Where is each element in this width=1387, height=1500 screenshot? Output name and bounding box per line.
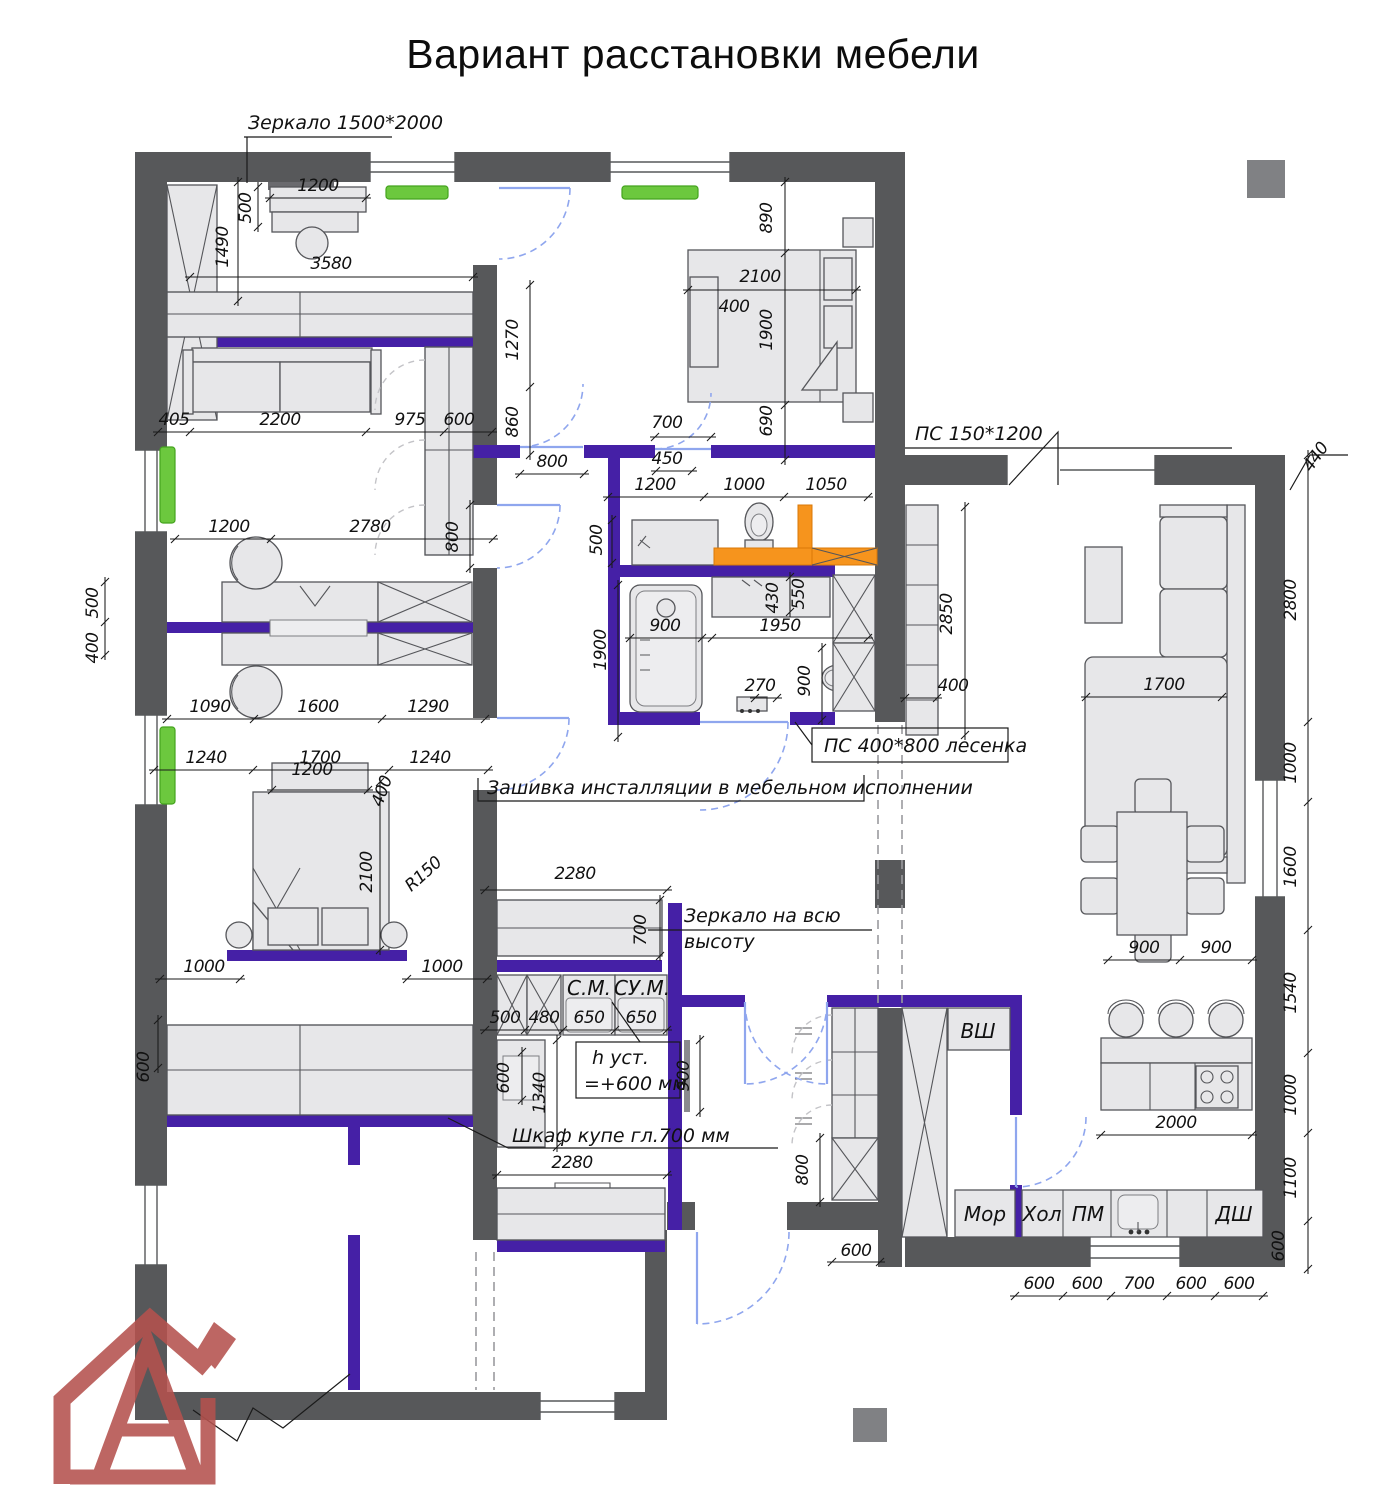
closet-hangers-bedroom2 (167, 1025, 473, 1115)
dimension-label: 1240 (409, 748, 450, 768)
annotation-ps-ladder: ПС 400*800 лесенка (824, 735, 1027, 757)
dining-table (1117, 812, 1187, 935)
dimension-label: 400 (719, 297, 750, 317)
annotation-mirror-full-2: высоту (684, 931, 755, 953)
dimension-label: 2200 (259, 410, 300, 430)
dimension-label: 650 (574, 1008, 605, 1028)
annotation-mirror-top: Зеркало 1500*2000 (248, 112, 443, 134)
annotation-wardrobe: Шкаф купе гл.700 мм (512, 1125, 730, 1147)
dimension-label: 600 (494, 1063, 514, 1094)
dimension-label: 1090 (189, 697, 230, 717)
dimension-label: 600 (1176, 1274, 1207, 1294)
radiator-icon (160, 447, 175, 523)
dimension-label: 400 (83, 633, 103, 664)
dimension-label: 480 (529, 1008, 560, 1028)
dimension-label: 1900 (591, 629, 611, 670)
stool (381, 922, 407, 948)
dimension-label: 500 (83, 588, 103, 619)
dimension-label: 1270 (503, 319, 523, 360)
tv-console (1085, 547, 1122, 623)
dimension-label: 1700 (1143, 675, 1184, 695)
label-dsh: ДШ (1214, 1202, 1252, 1226)
dimension-label: 1600 (297, 697, 338, 717)
marker-square (1247, 160, 1285, 198)
dimension-label: 900 (795, 666, 815, 697)
dimension-label: 2100 (357, 851, 377, 892)
dimension-label: 690 (757, 406, 777, 437)
dimension-label: 600 (1072, 1274, 1103, 1294)
chair (1186, 826, 1224, 862)
office-chair (230, 537, 282, 589)
page-title: Вариант расстановки мебели (406, 31, 979, 77)
dimension-label: 400 (938, 676, 969, 696)
radiator-icon (160, 727, 175, 804)
nightstand (843, 218, 873, 247)
annotation-h-inst-2: =+600 мм (584, 1073, 687, 1095)
bar-stool (1109, 1003, 1143, 1037)
dimension-label: 1200 (634, 475, 675, 495)
bookshelf-wall (906, 505, 938, 735)
radiator-icon (622, 186, 698, 199)
vestibule-wardrobe (497, 1183, 665, 1240)
dimension-label: 1540 (1281, 972, 1301, 1013)
label-sum: СУ.М. (614, 976, 670, 1000)
label-vsh: ВШ (960, 1019, 995, 1043)
office-chair (230, 666, 282, 718)
marker-square (853, 1408, 887, 1442)
dimension-label: 600 (1024, 1274, 1055, 1294)
dimension-label: 270 (745, 676, 776, 696)
chair (1081, 826, 1119, 862)
dimension-label: 1600 (1281, 846, 1301, 887)
closet-hangers-top (167, 292, 473, 337)
dimension-label: 450 (652, 449, 683, 469)
dimension-label: 1000 (1281, 1074, 1301, 1115)
dimension-label: 1700 (299, 748, 340, 768)
label-mor: Мор (964, 1202, 1006, 1226)
dimension-label: 2280 (554, 864, 595, 884)
dimension-label: 900 (1201, 938, 1232, 958)
annotation-installation: Зашивка инсталляции в мебельном исполнен… (487, 777, 973, 799)
dimension-label: 2800 (1281, 579, 1301, 620)
floor-plan-page: 1200500149035804052200975600127086080089… (0, 0, 1387, 1500)
dimension-label: 700 (652, 413, 683, 433)
dimension-label: 600 (1269, 1231, 1289, 1262)
floor-plan-drawing: 1200500149035804052200975600127086080089… (0, 0, 1387, 1500)
dimension-label: 1100 (1281, 1157, 1301, 1198)
dimension-label: 430 (763, 583, 783, 614)
chair (1186, 878, 1224, 914)
dimension-label: 2280 (551, 1153, 592, 1173)
bar-stool (1159, 1003, 1193, 1037)
dimension-label: 600 (444, 410, 475, 430)
dimension-label: 1200 (297, 176, 338, 196)
dimension-label: 600 (134, 1052, 154, 1083)
dimension-label: 890 (757, 203, 777, 234)
dimension-label: 2100 (739, 267, 780, 287)
annotation-ps-window: ПС 150*1200 (915, 423, 1043, 445)
dimension-label: 800 (793, 1155, 813, 1186)
sofa-office (183, 348, 381, 414)
stove (1196, 1066, 1238, 1108)
dimension-label: 900 (1129, 938, 1160, 958)
bed-1 (688, 218, 873, 422)
dimension-label: 3580 (310, 254, 351, 274)
annotation-mirror-full-1: Зеркало на всю (684, 905, 841, 927)
dimension-label: 700 (1124, 1274, 1155, 1294)
dimension-label: 400 (368, 773, 397, 809)
dimension-label: 1290 (407, 697, 448, 717)
dimension-label: 1950 (759, 616, 800, 636)
label-hol: Хол (1022, 1202, 1062, 1226)
dimension-label: 900 (650, 616, 681, 636)
kitchen-island (1101, 1000, 1252, 1110)
dimension-label: 2780 (349, 517, 390, 537)
dimension-label: 1340 (530, 1072, 550, 1113)
dimension-label: 975 (395, 410, 426, 430)
chair (1081, 878, 1119, 914)
dimension-label: 800 (443, 522, 463, 553)
dimension-label: 1000 (723, 475, 764, 495)
dimension-label: 600 (841, 1241, 872, 1261)
dimension-label: 1200 (208, 517, 249, 537)
bench (737, 697, 767, 711)
label-pm: ПМ (1072, 1202, 1104, 1226)
dimension-label: 1050 (805, 475, 846, 495)
dimension-label: 2000 (1155, 1113, 1196, 1133)
dimension-label: 1000 (421, 957, 462, 977)
annotation-h-inst-1: h уст. (592, 1047, 649, 1069)
dimension-label: 860 (503, 407, 523, 438)
dimension-label: 1240 (185, 748, 226, 768)
dimension-label: 1000 (183, 957, 224, 977)
dimension-label: 500 (490, 1008, 521, 1028)
dimension-label: 1490 (213, 226, 233, 267)
stool (226, 922, 252, 948)
dimension-label: 500 (587, 525, 607, 556)
dimension-label: 1900 (757, 309, 777, 350)
nightstand (843, 393, 873, 422)
chair (1135, 779, 1171, 815)
dimension-label: 440 (1299, 439, 1333, 476)
label-sm: С.М. (567, 976, 611, 1000)
dimension-label: 650 (626, 1008, 657, 1028)
dimension-label: 800 (537, 452, 568, 472)
dimension-label: 500 (236, 193, 256, 224)
dimension-label: 600 (1224, 1274, 1255, 1294)
installation-orange (714, 505, 877, 565)
dimension-label: 550 (789, 579, 809, 610)
dimension-label: 1000 (1281, 742, 1301, 783)
dimension-label: 2850 (937, 593, 957, 634)
dimension-label: R150 (401, 853, 446, 896)
radiator-icon (386, 186, 448, 199)
bar-stool (1209, 1003, 1243, 1037)
dimension-label: 405 (159, 410, 190, 430)
